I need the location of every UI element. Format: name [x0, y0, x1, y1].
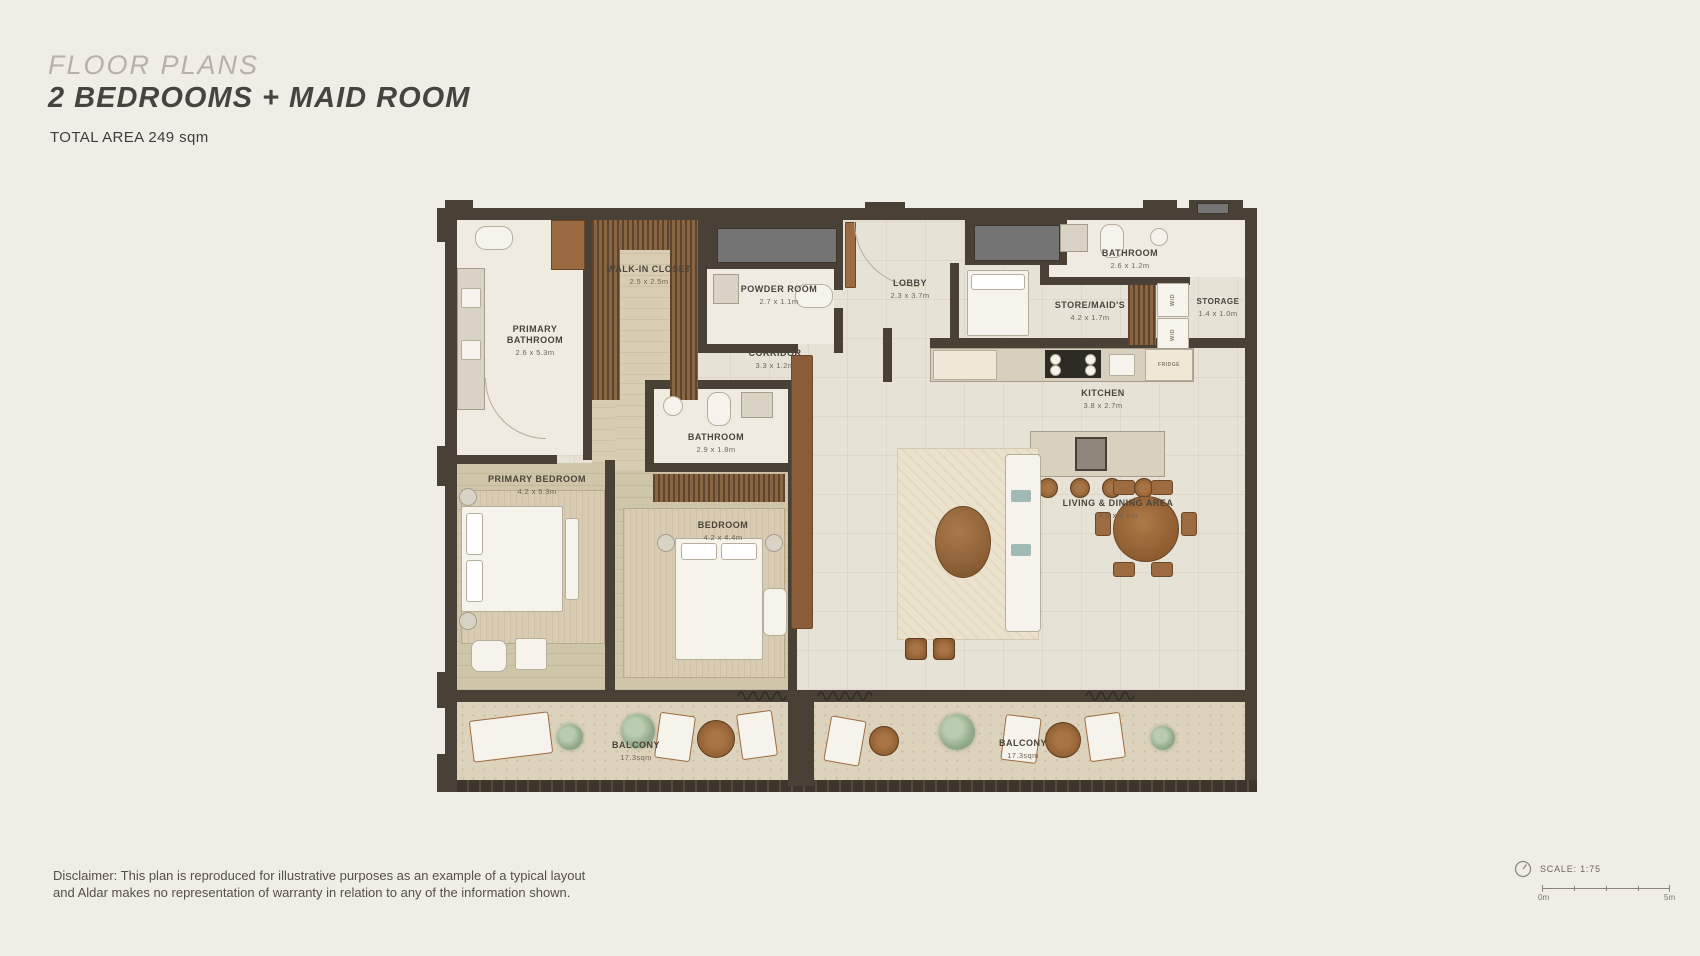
washer-dryer-unit: W/D — [1157, 318, 1189, 352]
round-table-symbol — [697, 720, 735, 758]
window-glass — [974, 225, 1060, 261]
glazing-line — [1143, 695, 1239, 697]
burner-symbol — [1085, 354, 1096, 365]
wall-segment — [445, 780, 1257, 792]
bathroom-cabinet — [551, 220, 585, 270]
room-label-corridor: CORRIDOR 3.3 x 1.2m — [725, 348, 825, 371]
toilet-symbol — [475, 226, 513, 250]
armchair-symbol — [471, 640, 507, 672]
sink-symbol — [461, 288, 481, 308]
wall-segment — [883, 328, 892, 382]
room-label-maid-bathroom: BATHROOM 2.6 x 1.2m — [1075, 248, 1185, 271]
burner-symbol — [1050, 365, 1061, 376]
balcony-divider-wall — [788, 690, 814, 786]
total-area: TOTAL AREA 249 sqm — [50, 129, 209, 146]
deck-chair-symbol — [736, 710, 778, 761]
sliding-wood-panel — [791, 355, 813, 629]
plant-symbol — [939, 714, 975, 750]
wall-segment — [950, 263, 959, 348]
window-squiggle-icon — [817, 688, 877, 703]
wall-segment — [445, 208, 1257, 220]
pouf-symbol — [905, 638, 927, 660]
room-label-bathroom: BATHROOM 2.9 x 1.8m — [666, 432, 766, 455]
wall-segment — [1245, 208, 1257, 702]
cushion-symbol — [1011, 544, 1031, 556]
shower-symbol — [1150, 228, 1168, 246]
wardrobe-joinery — [653, 474, 785, 502]
wall-notch — [445, 200, 473, 216]
room-label-living-dining: LIVING & DINING AREA 4.9 x 8.6m — [1018, 498, 1218, 521]
scale-label: SCALE: 1:75 — [1540, 864, 1601, 874]
wall-notch — [437, 754, 457, 792]
chair-symbol — [1113, 480, 1135, 495]
disclaimer-line2: and Aldar makes no representation of war… — [53, 884, 585, 901]
pillow-symbol — [971, 274, 1025, 290]
wall-notch — [437, 446, 457, 486]
plant-symbol — [1151, 726, 1175, 750]
closet-joinery — [670, 220, 698, 400]
room-label-store-maids: STORE/MAID'S 4.2 x 1.7m — [1025, 300, 1155, 323]
window-squiggle-icon — [737, 688, 787, 703]
wall-notch — [1143, 200, 1177, 216]
island-sink-symbol — [1075, 437, 1107, 471]
desk-symbol — [763, 588, 787, 636]
sofa-symbol — [1005, 454, 1041, 632]
room-label-kitchen: KITCHEN 3.8 x 2.7m — [1053, 388, 1153, 411]
burner-symbol — [1085, 365, 1096, 376]
wall-segment — [645, 380, 797, 389]
scale-end-label: 5m — [1664, 893, 1675, 902]
room-label-storage: STORAGE 1.4 x 1.0m — [1185, 296, 1251, 319]
page-title: 2 BEDROOMS + MAID ROOM — [48, 82, 470, 115]
pillow-symbol — [466, 560, 483, 602]
bench-symbol — [565, 518, 579, 600]
scale-tick — [1638, 886, 1639, 891]
wall-segment — [834, 308, 843, 353]
glazing-line — [879, 695, 1083, 697]
sink-symbol — [741, 392, 773, 418]
room-label-bedroom: BEDROOM 4.2 x 4.4m — [673, 520, 773, 543]
kitchen-sink-symbol — [1109, 354, 1135, 376]
closet-joinery — [592, 220, 620, 400]
room-label-walk-in-closet: WALK-IN CLOSET 2.5 x 2.5m — [603, 264, 695, 287]
wall-segment — [930, 338, 1246, 348]
disclaimer-line1: Disclaimer: This plan is reproduced for … — [53, 867, 585, 884]
window-squiggle-icon — [1085, 688, 1141, 703]
fridge-unit: FRIDGE — [1145, 349, 1193, 381]
shower-symbol — [663, 396, 683, 416]
kitchen-cabinet — [933, 350, 997, 380]
scale-start-label: 0m — [1538, 893, 1549, 902]
wall-notch — [865, 202, 905, 214]
scale-tick — [1574, 886, 1575, 891]
washer-dryer-label: W/D — [1157, 320, 1189, 350]
scale-tick — [1542, 885, 1543, 892]
pillow-symbol — [466, 513, 483, 555]
deck-chair-symbol — [1084, 712, 1126, 763]
wall-segment — [1245, 690, 1257, 792]
room-label-lobby: LOBBY 2.3 x 3.7m — [865, 278, 955, 301]
pouf-symbol — [933, 638, 955, 660]
scale-block: SCALE: 1:75 0m 5m — [1514, 862, 1680, 910]
wall-segment — [645, 380, 654, 472]
disclaimer: Disclaimer: This plan is reproduced for … — [53, 867, 585, 901]
floor-plan: W/D W/D FRIDGE — [445, 208, 1257, 792]
scale-tick — [1669, 885, 1670, 892]
room-label-primary-bedroom: PRIMARY BEDROOM 4.2 x 5.3m — [462, 474, 612, 497]
chair-symbol — [1151, 480, 1173, 495]
floor-plans-eyebrow: FLOOR PLANS — [48, 50, 259, 81]
fridge-label: FRIDGE — [1146, 350, 1192, 380]
nightstand-symbol — [459, 612, 477, 630]
scale-tick — [1606, 886, 1607, 891]
window-glass — [1197, 203, 1229, 214]
stool-symbol — [1038, 478, 1058, 498]
coffee-table-symbol — [935, 506, 991, 578]
scale-compass-icon — [1514, 860, 1532, 878]
round-table-symbol — [869, 726, 899, 756]
room-label-balcony-left: BALCONY 17.3sqm — [586, 740, 686, 763]
plant-symbol — [557, 724, 583, 750]
sink-symbol — [713, 274, 739, 304]
wall-notch — [437, 672, 457, 708]
room-label-powder-room: POWDER ROOM 2.7 x 1.1m — [737, 284, 821, 307]
glazing-line — [465, 695, 735, 697]
chair-symbol — [1151, 562, 1173, 577]
burner-symbol — [1050, 354, 1061, 365]
stool-symbol — [1070, 478, 1090, 498]
wall-segment — [645, 463, 797, 472]
room-label-balcony-right: BALCONY 17.3sqm — [973, 738, 1073, 761]
chair-symbol — [1113, 562, 1135, 577]
scale-bar — [1542, 888, 1670, 889]
sink-symbol — [461, 340, 481, 360]
pillow-symbol — [681, 543, 717, 560]
room-label-primary-bathroom: PRIMARY BATHROOM 2.6 x 5.3m — [485, 324, 585, 358]
ottoman-symbol — [515, 638, 547, 670]
toilet-symbol — [707, 392, 731, 426]
window-glass — [717, 228, 837, 263]
wall-segment — [457, 455, 557, 464]
pillow-symbol — [721, 543, 757, 560]
